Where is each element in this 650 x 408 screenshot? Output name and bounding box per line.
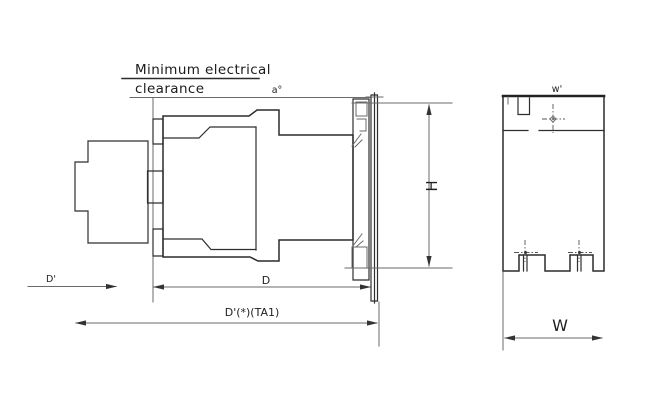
rail-hook-top bbox=[357, 119, 366, 131]
d-arrow-right bbox=[360, 284, 371, 289]
dimension-d-prime-label: D' bbox=[46, 274, 56, 285]
dimension-w: W bbox=[503, 272, 603, 350]
body-outline bbox=[163, 110, 353, 261]
front-view-outline bbox=[503, 96, 604, 271]
dimension-d-total-label: D'(*)(TA1) bbox=[225, 306, 280, 319]
dimension-w-label: W bbox=[552, 316, 568, 335]
dimension-h-label: H bbox=[423, 180, 441, 191]
rail-clip-bottom bbox=[352, 247, 367, 268]
d-arrow-left bbox=[153, 284, 164, 289]
center-mark-bottom-right bbox=[568, 240, 592, 262]
h-arrow-up bbox=[426, 104, 431, 115]
w-arrow-right bbox=[592, 335, 603, 340]
u-slot bbox=[518, 98, 530, 115]
bottom-slot-left bbox=[524, 255, 528, 271]
h-arrow-down bbox=[426, 256, 431, 267]
center-mark-bottom-left bbox=[514, 240, 538, 262]
technical-drawing: Minimum electrical clearance a° bbox=[0, 0, 650, 408]
center-mark-top bbox=[542, 104, 565, 133]
w-arrow-left bbox=[504, 335, 515, 340]
center-mark-bl-dot bbox=[524, 251, 527, 254]
center-mark-top-dot bbox=[552, 118, 554, 120]
dimension-d-prime: D' bbox=[28, 274, 117, 289]
accessory-connector bbox=[148, 171, 164, 203]
clearance-note-line2: clearance bbox=[135, 81, 204, 97]
dimension-d: D bbox=[153, 274, 371, 290]
inner-module-bottom bbox=[163, 239, 256, 250]
d-prime-arrow-right bbox=[106, 284, 117, 289]
rail-clip-top bbox=[356, 102, 367, 116]
clearance-note-line1: Minimum electrical bbox=[135, 62, 271, 78]
inner-module-top bbox=[163, 127, 256, 138]
dimension-d-total: D'(*)(TA1) bbox=[75, 306, 378, 326]
terminal-shroud-bottom bbox=[153, 229, 163, 256]
center-mark-br-dot bbox=[578, 251, 581, 254]
d-total-arrow-right bbox=[367, 320, 378, 325]
bottom-slot-right bbox=[578, 255, 582, 271]
dimension-a-label: a° bbox=[272, 85, 283, 96]
dimension-w-small: w' bbox=[552, 84, 562, 95]
terminal-shroud-top bbox=[153, 119, 163, 144]
dimension-d-label: D bbox=[262, 274, 270, 287]
drawing-canvas: Minimum electrical clearance a° bbox=[0, 0, 650, 408]
inner-module bbox=[163, 127, 256, 250]
dimension-a: a° bbox=[272, 85, 283, 96]
d-total-arrow-left bbox=[75, 320, 86, 325]
accessory-block-outline bbox=[75, 141, 148, 243]
clearance-note: Minimum electrical clearance bbox=[122, 62, 371, 98]
dimension-w-small-label: w' bbox=[552, 84, 562, 95]
rear-section bbox=[352, 99, 369, 280]
mounting-plate-lines bbox=[371, 93, 378, 303]
front-view bbox=[503, 96, 604, 271]
